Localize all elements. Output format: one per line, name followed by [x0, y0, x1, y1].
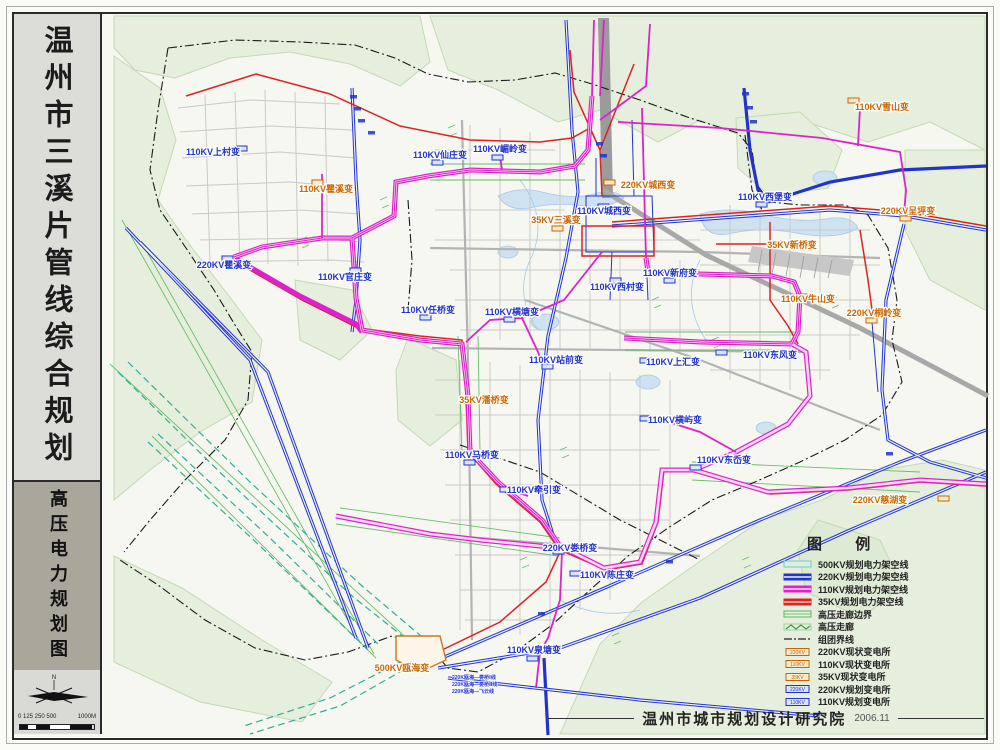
legend-item-220kv-planned: 220KV 220KV规划变电所	[783, 683, 983, 696]
line-110kv-swatch	[783, 584, 813, 594]
line-name-label: 220K瓯海—娄桥Ⅰ线	[452, 674, 496, 681]
scale-bar	[19, 724, 95, 730]
station-planned-swatch: 220KV	[783, 684, 813, 694]
legend-item-500kv: 500KV规划电力架空线	[783, 558, 983, 571]
legend-item-220kv-existing: 220KV 220KV现状变电所	[783, 646, 983, 659]
plan-title: 温州市三溪片管线综合规划	[36, 25, 78, 469]
legend-item-corridor: 高压走廊	[783, 621, 983, 634]
svg-text:110KV: 110KV	[790, 700, 805, 706]
substation-label: 110KV西村变	[590, 281, 644, 292]
substation-label: 220KV娄桥变	[543, 542, 598, 553]
legend-item-corridor-boundary: 高压走廊边界	[783, 608, 983, 621]
legend-title: 图 例	[807, 533, 983, 554]
substation-label: 500KV瓯海变	[375, 662, 430, 673]
substation-label: 110KV泉塘变	[507, 644, 561, 655]
substation-label: 220KV桐岭变	[847, 307, 902, 318]
legend: 图 例 500KV规划电力架空线 220KV规划电力架空线 110KV规划电力架…	[783, 533, 983, 708]
substation-label: 110KV官庄变	[318, 271, 372, 282]
substation-label: 220KV慈湖变	[853, 494, 908, 505]
scale-ticks: 0 125 250 500	[18, 714, 56, 720]
substation-label: 110KV横屿变	[648, 414, 702, 425]
legend-item-35kv-existing: 35KV 35KV现状变电所	[783, 671, 983, 684]
station-existing-swatch: 220KV	[783, 647, 813, 657]
sheet-title-box: 高压电力规划图	[14, 482, 100, 672]
plan-title-box: 温州市三溪片管线综合规划	[14, 14, 100, 482]
substation-label: 110KV仙庄变	[413, 149, 467, 160]
substation-label: 110KV马桥变	[445, 449, 499, 460]
substation-label: 110KV东风变	[743, 349, 797, 360]
scale-text: 0 125 250 500 1000M	[18, 714, 96, 720]
substation-label: 110KV陈庄变	[580, 569, 634, 580]
substation-label: 110KV东岙变	[697, 454, 751, 465]
substation-label: 110KV上村变	[186, 146, 240, 157]
substation-label: 110KV新府变	[643, 267, 697, 278]
substation-label: 110KV西堡变	[738, 191, 792, 202]
credit-rule-left	[548, 718, 634, 719]
svg-text:220KV: 220KV	[790, 650, 806, 656]
line-name-label: 220K瓯海—娄桥Ⅱ线	[452, 681, 497, 688]
sidebar: 温州市三溪片管线综合规划 高压电力规划图 N 0 125 250 500 100…	[14, 14, 102, 734]
substation-label: 110KV嵋岭变	[473, 143, 527, 154]
substation-label: 220KV城西变	[621, 179, 676, 190]
line-name-label: 220K瓯海—飞云线	[452, 688, 494, 695]
corridor-swatch	[783, 622, 813, 632]
scale-unit: 1000M	[78, 714, 96, 720]
substation-label: 110KV牵引变	[507, 484, 561, 495]
legend-item-cluster-boundary: 组团界线	[783, 633, 983, 646]
credit-org: 温州市城市规划设计研究院	[642, 708, 846, 729]
cluster-boundary-swatch	[783, 634, 813, 644]
compass-scale-box: N 0 125 250 500 1000M	[14, 670, 100, 734]
station-existing-swatch: 110KV	[783, 659, 813, 669]
credit-block: 温州市城市规划设计研究院 2006.11	[548, 708, 984, 729]
station-existing-swatch: 35KV	[783, 672, 813, 682]
svg-text:220KV: 220KV	[790, 687, 806, 693]
credit-date: 2006.11	[854, 713, 889, 724]
substation-label: 110KV瞿溪变	[299, 183, 353, 194]
line-500kv-swatch	[783, 559, 813, 569]
substation-label: 110KV上汇变	[646, 356, 700, 367]
legend-item-220kv: 220KV规划电力架空线	[783, 571, 983, 584]
compass-icon: N	[14, 670, 100, 712]
legend-item-110kv-planned: 110KV 110KV规划变电所	[783, 696, 983, 709]
substation-label: 35KV潘桥变	[459, 394, 509, 405]
credit-rule-right	[898, 718, 984, 719]
sheet-title: 高压电力规划图	[44, 489, 70, 664]
station-planned-swatch: 110KV	[783, 697, 813, 707]
substation-label: 110KV站前变	[529, 354, 583, 365]
substation-label: 110KV牛山变	[781, 293, 835, 304]
substation-label: 110KV城西变	[577, 205, 631, 216]
substation-label: 220KV瞿溪变	[197, 259, 252, 270]
legend-item-110kv: 110KV规划电力架空线	[783, 583, 983, 596]
line-name-labels: 220K瓯海—娄桥Ⅰ线 220K瓯海—娄桥Ⅱ线 220K瓯海—飞云线	[452, 674, 497, 695]
substation-label: 110KV任桥变	[401, 304, 455, 315]
substation-label: 110KV雪山变	[855, 101, 909, 112]
substation-label: 35KV新桥变	[767, 239, 817, 250]
substation-label: 35KV三溪变	[531, 214, 581, 225]
line-220kv-swatch	[783, 572, 813, 582]
substation-label: 110KV横塘变	[485, 306, 539, 317]
legend-item-35kv: 35KV规划电力架空线	[783, 596, 983, 609]
svg-text:110KV: 110KV	[790, 662, 805, 668]
svg-text:35KV: 35KV	[791, 675, 804, 681]
line-35kv-swatch	[783, 597, 813, 607]
substation-label: 220KV呈坪变	[881, 205, 936, 216]
corridor-boundary-swatch	[783, 609, 813, 619]
legend-item-110kv-existing: 110KV 110KV现状变电所	[783, 658, 983, 671]
